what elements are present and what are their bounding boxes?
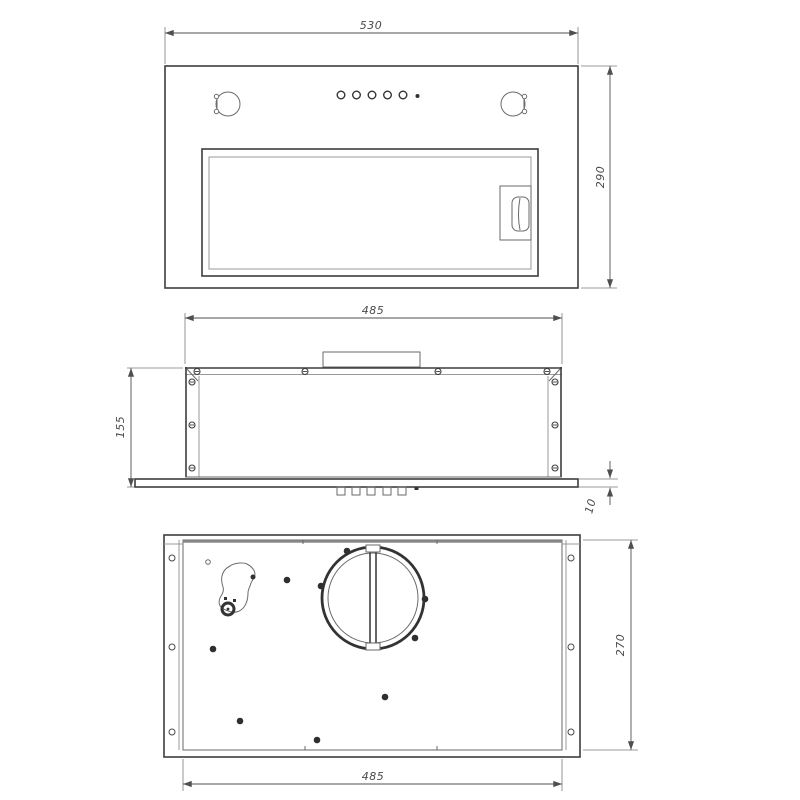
button-2 (353, 91, 361, 99)
button-side-1 (337, 487, 345, 495)
rivet (237, 718, 244, 725)
indicator-dot (416, 94, 420, 98)
mounting-hole (169, 644, 175, 650)
dimension-label-530: 530 (360, 19, 383, 32)
button-side-4 (383, 487, 391, 495)
outlet-ring-outer (322, 547, 424, 649)
right-lamp (501, 92, 527, 116)
dimension-top-depth: 270 (583, 540, 638, 750)
air-outlet (318, 545, 429, 650)
dimension-top-width: 485 (183, 759, 562, 791)
left-lamp-notch (214, 94, 218, 98)
screw (552, 379, 558, 385)
button-4 (384, 91, 392, 99)
side-view: 485 155 10 (114, 304, 618, 515)
bracket-dot (233, 599, 236, 602)
outlet-screw (422, 596, 429, 603)
right-lamp-notch (522, 109, 526, 113)
left-lamp-ring (216, 92, 240, 116)
dimension-side-height: 155 (114, 368, 183, 487)
screw (552, 465, 558, 471)
left-lamp (214, 92, 240, 116)
button-1 (337, 91, 345, 99)
mounting-hole (568, 644, 574, 650)
screw (435, 369, 441, 375)
outlet-screw (318, 583, 325, 590)
dimension-label-155: 155 (114, 416, 127, 439)
damper-hinge-top (366, 545, 380, 552)
screw (552, 422, 558, 428)
mounting-hole (169, 729, 175, 735)
bracket-dot (224, 597, 227, 600)
rivet (210, 646, 217, 653)
cable-gland-center (227, 608, 230, 611)
dimension-label-290: 290 (594, 166, 607, 189)
right-lamp-notch (522, 94, 526, 98)
front-panel-flange (135, 479, 578, 487)
button-row-side (337, 487, 419, 495)
screw (189, 422, 195, 428)
mounting-hole (169, 555, 175, 561)
indicator-side (415, 488, 419, 491)
dimension-front-width: 530 (165, 19, 578, 64)
mounting-hole (568, 555, 574, 561)
bracket-screw (251, 575, 256, 580)
screw (189, 379, 195, 385)
button-side-5 (398, 487, 406, 495)
filter-frame-outer (202, 149, 538, 276)
dimension-side-width: 485 (185, 304, 562, 364)
front-view: 530 290 (165, 19, 617, 288)
screw (194, 369, 200, 375)
filter-latch-box (500, 186, 531, 240)
screw (302, 369, 308, 375)
drawing-canvas: 530 290 (0, 0, 800, 800)
dimension-label-270: 270 (614, 634, 627, 657)
rivet (284, 577, 291, 584)
outlet-screw (412, 635, 419, 642)
control-buttons (337, 91, 419, 99)
screw (544, 369, 550, 375)
screw (189, 465, 195, 471)
technical-drawing: 530 290 (0, 0, 800, 800)
top-view: 270 485 (164, 535, 638, 791)
dimension-flange-thickness: 10 (579, 461, 618, 515)
button-side-3 (367, 487, 375, 495)
rivet (314, 737, 321, 744)
outlet-ring-inner (328, 553, 418, 643)
button-3 (368, 91, 376, 99)
button-side-2 (352, 487, 360, 495)
cable-bracket (219, 563, 255, 615)
small-hole (206, 560, 211, 565)
filter-frame-inner (209, 157, 531, 269)
filter-panel (202, 149, 538, 276)
damper-hinge-bottom (366, 643, 380, 650)
right-lamp-ring (501, 92, 525, 116)
dimension-label-485-top: 485 (362, 770, 385, 783)
rivet (382, 694, 389, 701)
dimension-label-485-side: 485 (362, 304, 385, 317)
left-lamp-notch (214, 109, 218, 113)
dimension-label-10: 10 (582, 497, 598, 515)
button-5 (399, 91, 407, 99)
outlet-screw (344, 548, 351, 555)
dimension-front-height: 290 (581, 66, 617, 288)
duct-adapter (323, 352, 420, 367)
mounting-hole (568, 729, 574, 735)
